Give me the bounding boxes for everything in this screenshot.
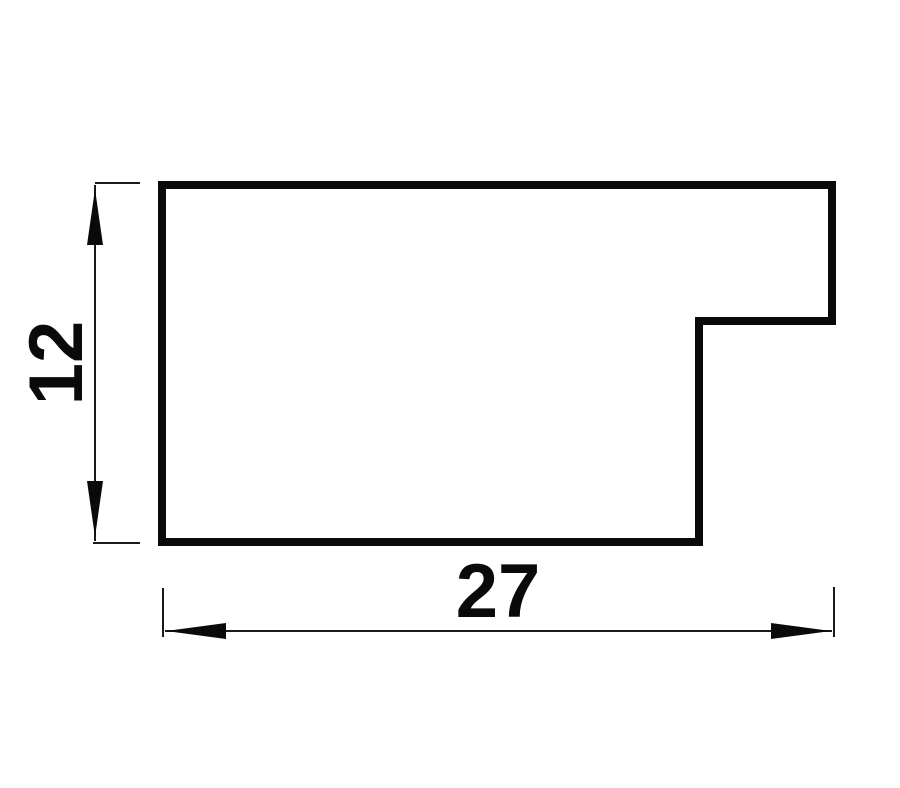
height-arrow-up-icon (87, 189, 103, 245)
height-arrow-down-icon (87, 481, 103, 537)
width-dimension-label: 27 (456, 549, 541, 634)
width-arrow-right-icon (771, 623, 831, 639)
width-arrow-left-icon (166, 623, 226, 639)
technical-drawing: 12 27 (0, 0, 900, 788)
drawing-canvas: 12 27 (0, 0, 900, 788)
profile-outline (162, 185, 832, 542)
height-dimension-label: 12 (14, 321, 99, 406)
